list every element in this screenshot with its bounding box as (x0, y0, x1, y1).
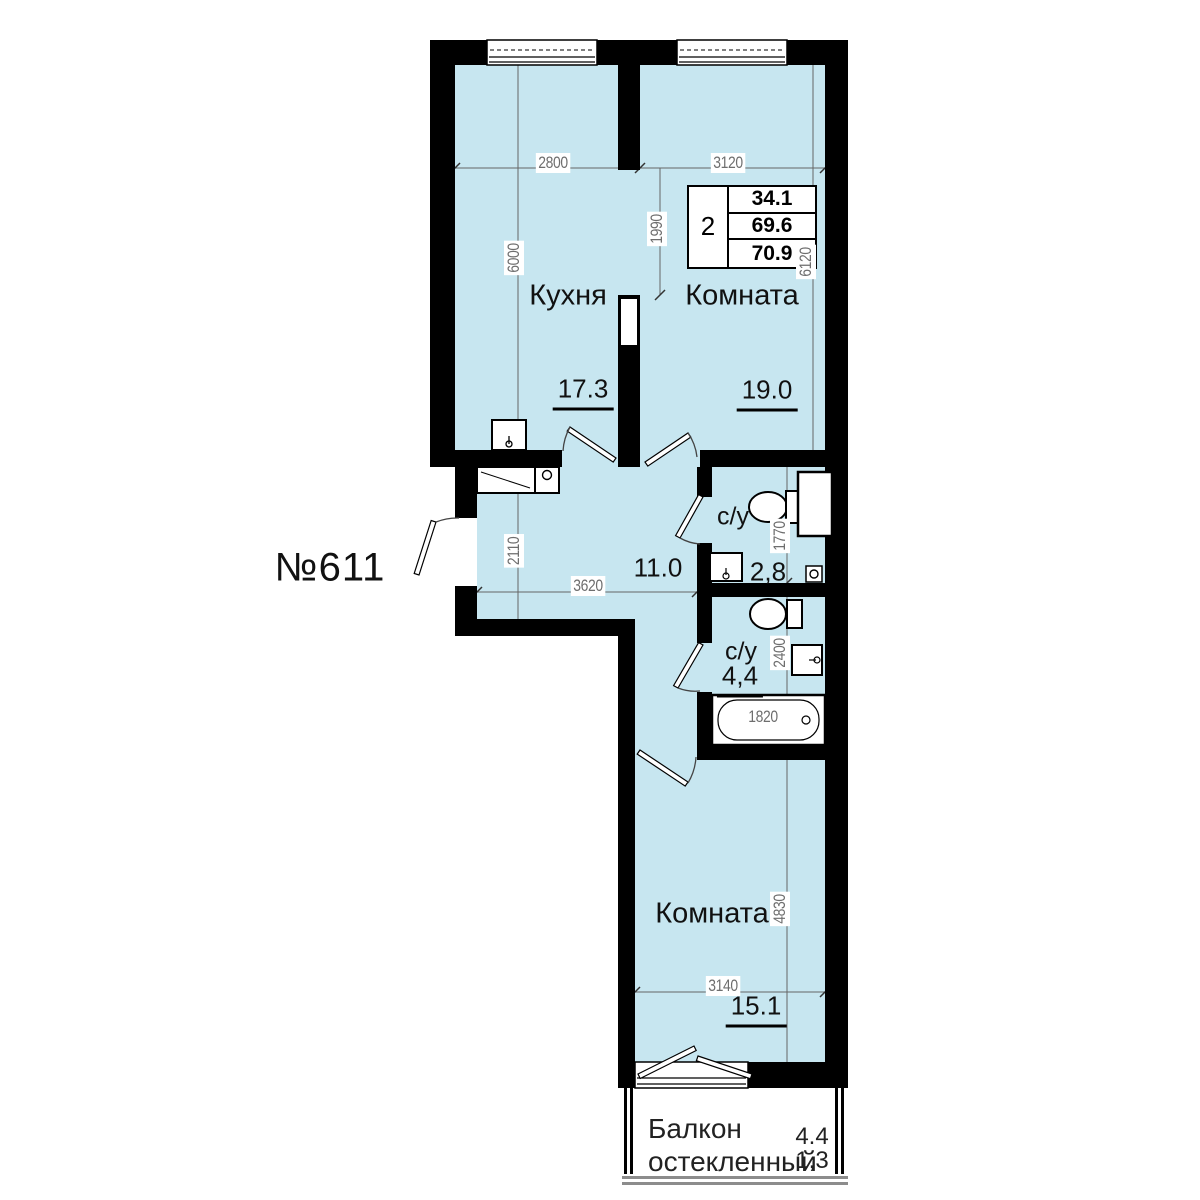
bath1-shower-box (798, 472, 832, 536)
dim-1990: 1990 (647, 212, 667, 246)
balcony-label: Балкон остекленный (648, 1112, 817, 1178)
balcony-label-line1: Балкон (648, 1112, 817, 1145)
room1-area: 19.0 (737, 375, 798, 412)
dim-2110: 2110 (504, 534, 524, 567)
dim-1770: 1770 (770, 519, 790, 553)
hall-area: 11.0 (634, 553, 683, 584)
wall-hall-bottom (455, 619, 635, 636)
kitchen-label: Кухня (529, 280, 607, 313)
wall-left-top (430, 40, 455, 467)
kitchen-area: 17.3 (553, 374, 614, 411)
room2-area: 15.1 (726, 991, 787, 1028)
room2-label: Комната (655, 898, 769, 931)
area-value: 69.6 (729, 214, 815, 241)
entry-door (414, 518, 459, 575)
bath2-area: 4,4 (717, 661, 763, 698)
washing-machine (535, 467, 559, 493)
dim-3620: 3620 (571, 576, 605, 596)
bath1-label: с/у (717, 503, 749, 532)
wall-passage-left (618, 628, 635, 1088)
dim-6120: 6120 (796, 245, 816, 279)
bath2-sink (792, 645, 822, 675)
room1-window (677, 40, 787, 65)
floor-plan-page: №611 2 34.1 69.6 70.9 Кухня Комната с/у … (0, 0, 1200, 1200)
room1-label: Комната (685, 280, 799, 313)
apartment-number: №611 (275, 546, 386, 591)
living-area-value: 34.1 (729, 187, 815, 214)
wall-room2-top (697, 745, 825, 760)
dim-3120: 3120 (711, 153, 745, 173)
bath2-toilet (750, 599, 802, 629)
wall-opening-panel (621, 299, 637, 345)
wall-kitchen-bottom (430, 450, 562, 467)
kitchen-window (487, 40, 597, 65)
wall-room2-bottom-right (748, 1062, 848, 1088)
hall-wardrobe (477, 467, 535, 493)
dim-2800: 2800 (536, 153, 570, 173)
wall-kitchen-room-upper (618, 65, 640, 170)
wall-room1-bottom (700, 450, 825, 467)
bath1-sink (710, 553, 742, 581)
dim-4830: 4830 (770, 892, 790, 926)
bath1-area: 2,8 (750, 557, 786, 588)
dim-1820: 1820 (746, 707, 780, 727)
dim-3140: 3140 (706, 976, 740, 996)
balcony-area-2: 1,3 (795, 1147, 828, 1175)
kitchen-sink (492, 420, 526, 450)
wall-bath-vert-1 (697, 467, 712, 497)
floor-plan-drawing (0, 0, 1200, 1200)
wall-right (825, 40, 848, 1088)
dim-2400: 2400 (770, 636, 790, 670)
wall-hall-left-upper (455, 450, 477, 518)
balcony-label-line2: остекленный (648, 1145, 817, 1178)
bath1-floor-drain (806, 566, 822, 582)
rooms-count: 2 (689, 187, 729, 267)
dim-6000: 6000 (504, 241, 524, 275)
